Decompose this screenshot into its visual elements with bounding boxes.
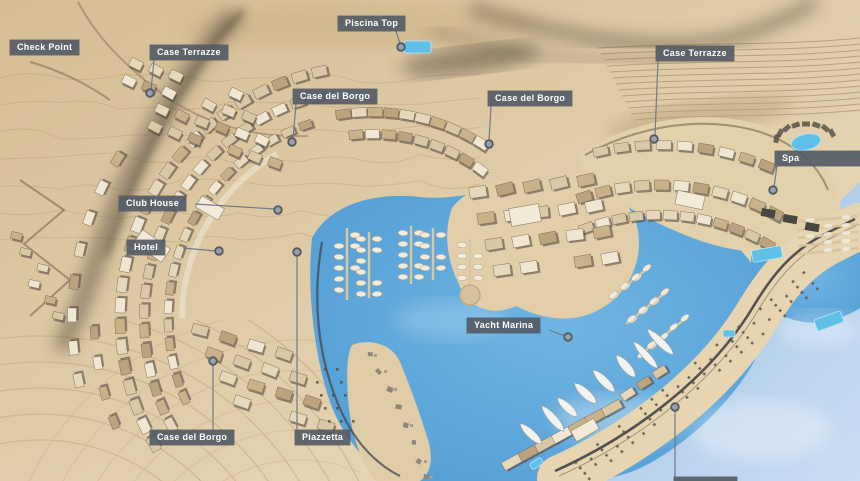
boat (398, 252, 408, 258)
boat (372, 236, 382, 242)
beach-umbrella (344, 394, 347, 397)
building (614, 182, 630, 194)
water-reflection (690, 400, 830, 460)
building (115, 318, 125, 333)
boat (420, 254, 430, 260)
map-marker-dot-case-terrazze-nw (146, 89, 154, 97)
map-marker-dot-spa (769, 186, 777, 194)
rocks (368, 352, 373, 356)
boat (398, 263, 408, 269)
map-label-case-del-borgo-ne[interactable]: Case del Borgo (488, 91, 572, 106)
building (164, 300, 173, 313)
boat (420, 243, 430, 249)
beach-umbrella (352, 420, 355, 423)
rocks (410, 424, 413, 427)
map-marker-dot-case-terrazze-ne (650, 135, 658, 143)
building (663, 210, 677, 220)
building (165, 281, 175, 295)
map-label-club-house[interactable]: Club House (119, 196, 186, 211)
rocks (424, 460, 427, 463)
map-label-case-del-borgo-n[interactable]: Case del Borgo (293, 89, 377, 104)
boat (436, 265, 446, 271)
map-label-case-terrazze-ne[interactable]: Case Terrazze (656, 46, 734, 61)
building (141, 343, 152, 358)
beach-umbrella (332, 394, 335, 397)
boat (356, 291, 366, 297)
map-marker-dot-beach-label-partial (671, 403, 679, 411)
boat (420, 265, 430, 271)
building (115, 298, 126, 313)
boat (334, 243, 344, 248)
rocks (423, 474, 428, 479)
map-label-case-del-borgo-s[interactable]: Case del Borgo (150, 430, 234, 445)
beach-umbrella (340, 420, 343, 423)
beach-umbrella (320, 394, 323, 397)
boat (356, 236, 366, 242)
building (165, 337, 175, 351)
beach-umbrella (340, 381, 343, 384)
building (139, 304, 148, 318)
boat (414, 274, 424, 280)
boat (334, 276, 344, 282)
map-marker-dot-piscina-top (397, 43, 405, 51)
boat (436, 232, 446, 238)
building (520, 260, 539, 274)
building (335, 109, 351, 120)
beach-umbrella (336, 407, 339, 410)
boat (398, 241, 408, 247)
boat (372, 280, 382, 286)
boat (457, 264, 467, 270)
boat (457, 253, 467, 259)
building (90, 326, 99, 339)
boat (398, 230, 408, 236)
building (629, 211, 644, 221)
building (381, 130, 396, 140)
beach-umbrella (324, 368, 327, 371)
boat (473, 264, 483, 270)
building (368, 107, 383, 116)
building (68, 340, 78, 355)
building (677, 141, 693, 151)
building (614, 142, 630, 153)
building (654, 180, 669, 190)
building (351, 107, 367, 117)
building (634, 180, 650, 191)
boat (356, 269, 366, 275)
rocks (430, 476, 433, 479)
boat (356, 247, 366, 253)
map-label-case-terrazze-nw[interactable]: Case Terrazze (150, 45, 228, 60)
beach-umbrella (316, 381, 319, 384)
map-label-yacht-marina[interactable]: Yacht Marina (467, 318, 540, 333)
beach-umbrella (328, 420, 331, 423)
building (164, 319, 172, 332)
map-marker-dot-yacht-marina (564, 333, 572, 341)
spa-cabana (802, 122, 810, 127)
boat (473, 253, 483, 258)
map-marker-dot-case-del-borgo-s (209, 357, 217, 365)
building (493, 263, 511, 276)
rocks (412, 440, 417, 445)
boat (334, 265, 344, 271)
map-label-spa[interactable]: Spa (775, 151, 860, 166)
boat (420, 232, 430, 238)
building (139, 324, 149, 338)
building (680, 211, 695, 222)
boat (398, 274, 408, 280)
map-label-check-point[interactable]: Check Point (10, 40, 79, 55)
boat (473, 275, 483, 281)
map-label-hotel[interactable]: Hotel (127, 240, 165, 255)
beach-umbrella (324, 407, 327, 410)
building (365, 129, 379, 138)
building (646, 210, 660, 219)
round-pier (460, 285, 480, 305)
boat (334, 254, 344, 260)
rocks (374, 354, 377, 357)
pool (404, 41, 431, 53)
building (469, 185, 487, 198)
building (673, 180, 689, 191)
resort-masterplan-map: Check PointCase TerrazzePiscina TopCase … (0, 0, 860, 481)
map-marker-dot-case-del-borgo-n (288, 138, 296, 146)
boat (334, 287, 344, 293)
beach-umbrella (336, 368, 339, 371)
map-marker-dot-case-del-borgo-ne (485, 140, 493, 148)
building (349, 130, 364, 140)
boat (436, 254, 446, 260)
boat (356, 258, 366, 264)
building (116, 277, 128, 293)
building (69, 275, 80, 290)
pool (723, 330, 735, 337)
map-label-piscina-top[interactable]: Piscina Top (338, 16, 405, 31)
boat (457, 242, 467, 248)
boat (457, 275, 467, 281)
building (67, 308, 76, 322)
building (635, 141, 651, 151)
map-label-piazzetta[interactable]: Piazzetta (295, 430, 350, 445)
map-marker-dot-piazzetta (293, 248, 301, 256)
rocks (384, 370, 387, 373)
building (116, 339, 128, 355)
building (656, 140, 671, 149)
map-label-beach-label-partial[interactable] (674, 477, 737, 481)
building (566, 229, 584, 242)
map-marker-dot-club-house (274, 206, 282, 214)
building (140, 284, 151, 299)
boat (372, 291, 382, 297)
building (477, 211, 495, 224)
boat (356, 280, 366, 286)
rocks (394, 388, 397, 391)
building (383, 108, 399, 118)
map-marker-dot-hotel (215, 247, 223, 255)
